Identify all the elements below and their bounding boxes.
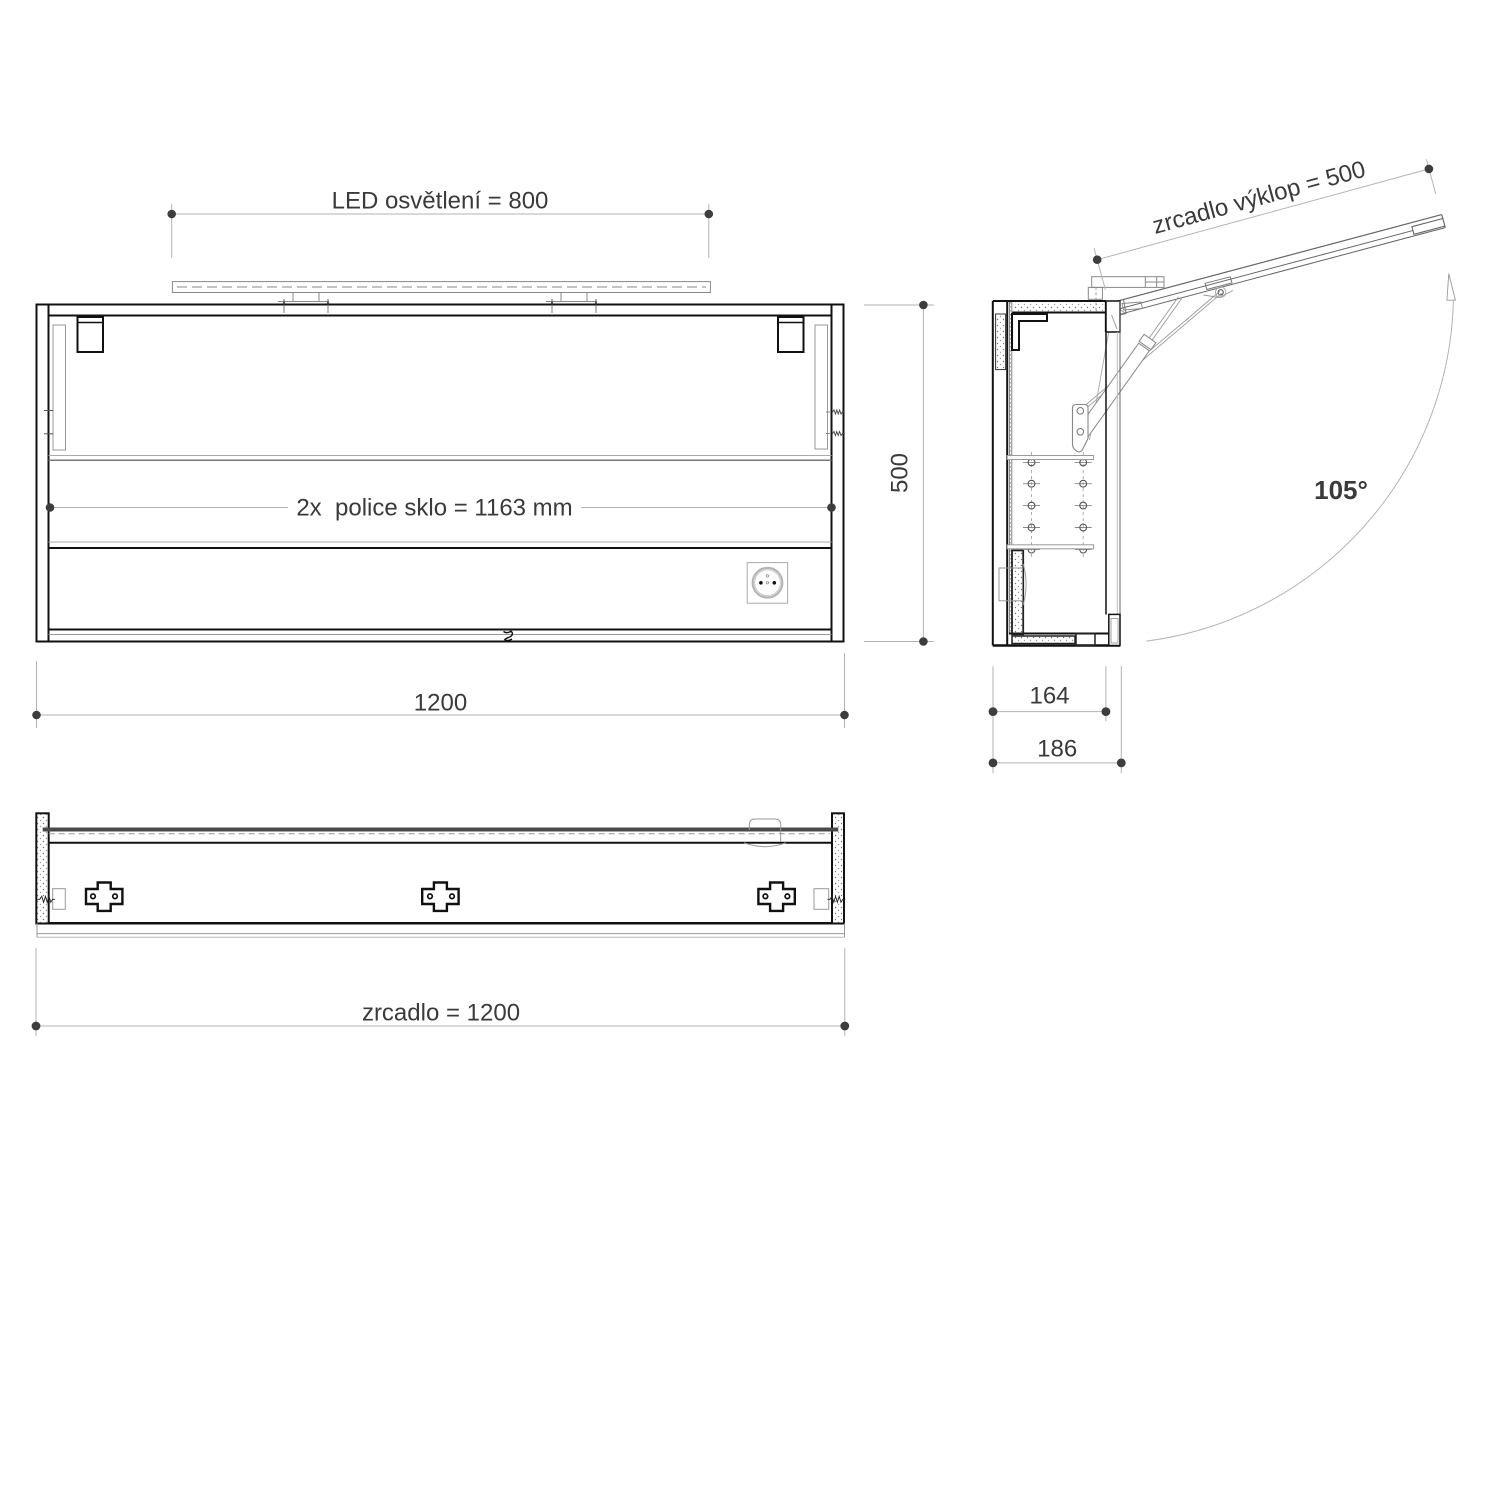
- svg-text:2x police sklo = 1163 mm: 2x police sklo = 1163 mm: [296, 495, 572, 522]
- svg-text:500: 500: [887, 453, 914, 493]
- svg-text:LED osvětlení = 800: LED osvětlení = 800: [332, 188, 549, 215]
- svg-text:186: 186: [1037, 735, 1077, 762]
- svg-text:105°: 105°: [1314, 475, 1368, 505]
- svg-text:1200: 1200: [414, 690, 467, 717]
- svg-text:zrcadlo = 1200: zrcadlo = 1200: [362, 999, 520, 1026]
- svg-text:164: 164: [1029, 682, 1069, 709]
